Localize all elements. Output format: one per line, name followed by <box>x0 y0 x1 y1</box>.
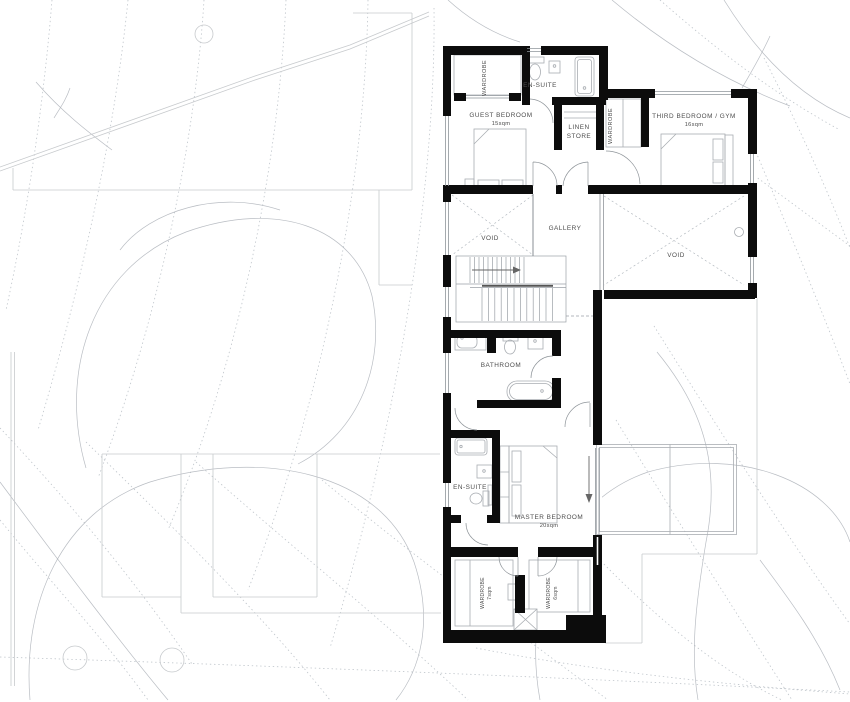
area-wardrobe-7: 7sqm <box>487 586 493 599</box>
label-guest-bedroom: GUEST BEDROOM <box>469 112 532 119</box>
tree-circle <box>63 646 87 670</box>
floor-plan-canvas: WARDROBE EN-SUITE GUEST BEDROOM 15sqm LI… <box>0 0 850 702</box>
label-bathroom: BATHROOM <box>481 362 521 369</box>
tree-circle <box>160 648 184 672</box>
area-third-bedroom: 16sqm <box>685 122 704 128</box>
label-ensuite-guest: EN-SUITE <box>523 82 557 89</box>
tree-circle <box>195 25 213 43</box>
label-wardrobe-7: WARDROBE <box>480 577 486 609</box>
label-void-left: VOID <box>481 235 499 242</box>
label-ensuite-master: EN-SUITE <box>453 484 487 491</box>
label-master-bedroom: MASTER BEDROOM <box>515 514 583 521</box>
area-wardrobe-6: 6sqm <box>553 586 559 599</box>
label-third-bedroom: THIRD BEDROOM / GYM <box>652 113 736 120</box>
label-wardrobe-third: WARDROBE <box>608 108 614 144</box>
label-gallery: GALLERY <box>549 225 582 232</box>
label-wardrobe-6: WARDROBE <box>546 577 552 609</box>
terrace-outline <box>597 445 737 535</box>
area-master-bedroom: 20sqm <box>540 523 559 529</box>
area-guest-bedroom: 15sqm <box>492 121 511 127</box>
floor-plan-page: WARDROBE EN-SUITE GUEST BEDROOM 15sqm LI… <box>0 0 850 702</box>
label-wardrobe-guest: WARDROBE <box>482 60 488 96</box>
label-void-right: VOID <box>667 252 685 259</box>
label-linen-store-1: LINEN <box>568 124 589 131</box>
label-linen-store-2: STORE <box>567 133 591 140</box>
